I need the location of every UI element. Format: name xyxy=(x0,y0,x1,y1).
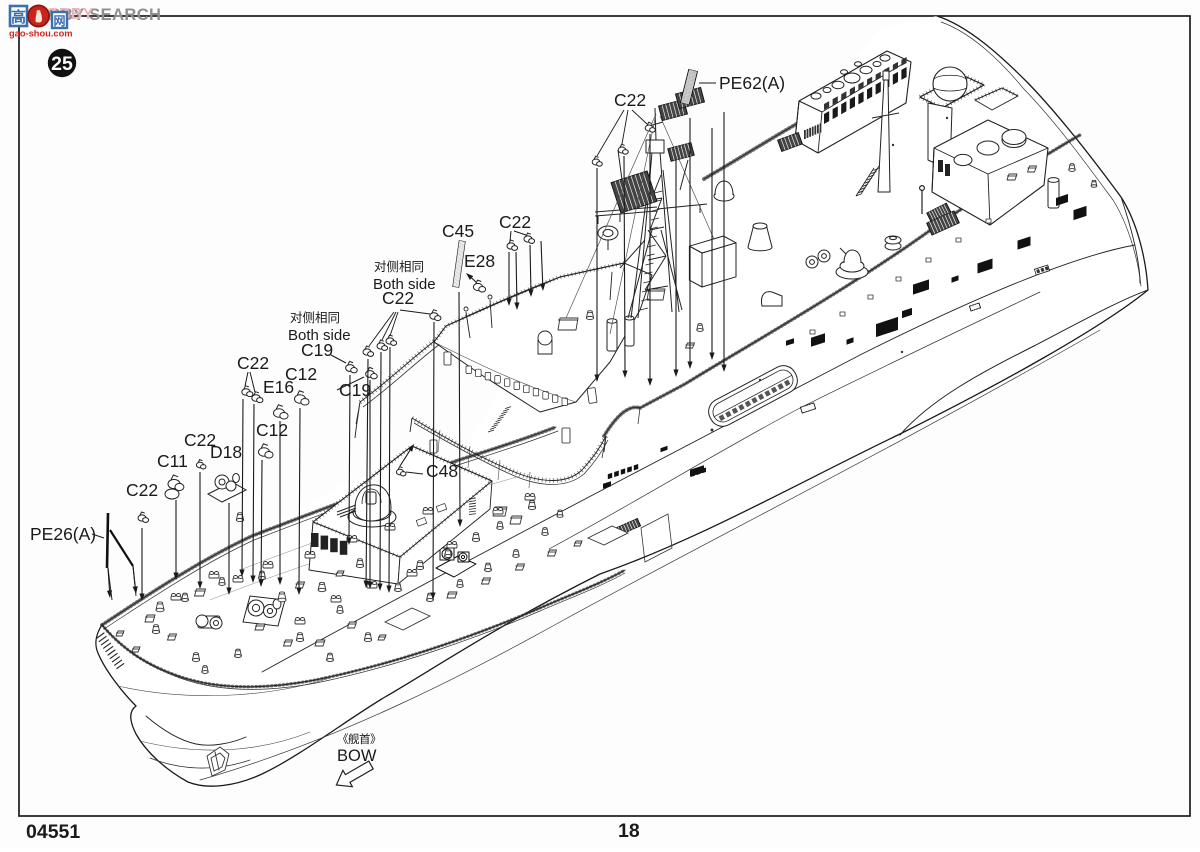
svg-text:C12: C12 xyxy=(285,364,317,384)
svg-text:04551: 04551 xyxy=(26,821,80,843)
svg-text:PE26(A): PE26(A) xyxy=(30,524,96,544)
svg-text:C12: C12 xyxy=(256,420,288,440)
svg-text:对侧相同: 对侧相同 xyxy=(290,311,340,325)
svg-text:gao-shou.com: gao-shou.com xyxy=(9,29,73,39)
svg-text:D18: D18 xyxy=(210,442,242,462)
svg-text:C45: C45 xyxy=(442,221,474,241)
svg-text:网: 网 xyxy=(53,14,65,28)
svg-text:高: 高 xyxy=(11,8,26,26)
svg-text:《舰首》: 《舰首》 xyxy=(337,732,381,746)
svg-text:BOW: BOW xyxy=(337,747,377,765)
svg-text:18: 18 xyxy=(618,820,640,842)
svg-text:C11: C11 xyxy=(157,451,188,471)
svg-text:25: 25 xyxy=(51,53,73,75)
svg-text:PE62(A): PE62(A) xyxy=(719,73,785,93)
svg-text:C19: C19 xyxy=(339,380,371,400)
svg-text:C22: C22 xyxy=(499,212,531,232)
svg-text:E28: E28 xyxy=(464,251,495,271)
svg-text:C48: C48 xyxy=(426,461,458,481)
svg-text:C22: C22 xyxy=(382,288,414,308)
svg-text:C22: C22 xyxy=(237,353,269,373)
svg-text:对侧相同: 对侧相同 xyxy=(374,260,424,274)
svg-text:C22: C22 xyxy=(614,90,646,110)
svg-text:C22: C22 xyxy=(126,480,158,500)
svg-text:C19: C19 xyxy=(301,340,333,360)
